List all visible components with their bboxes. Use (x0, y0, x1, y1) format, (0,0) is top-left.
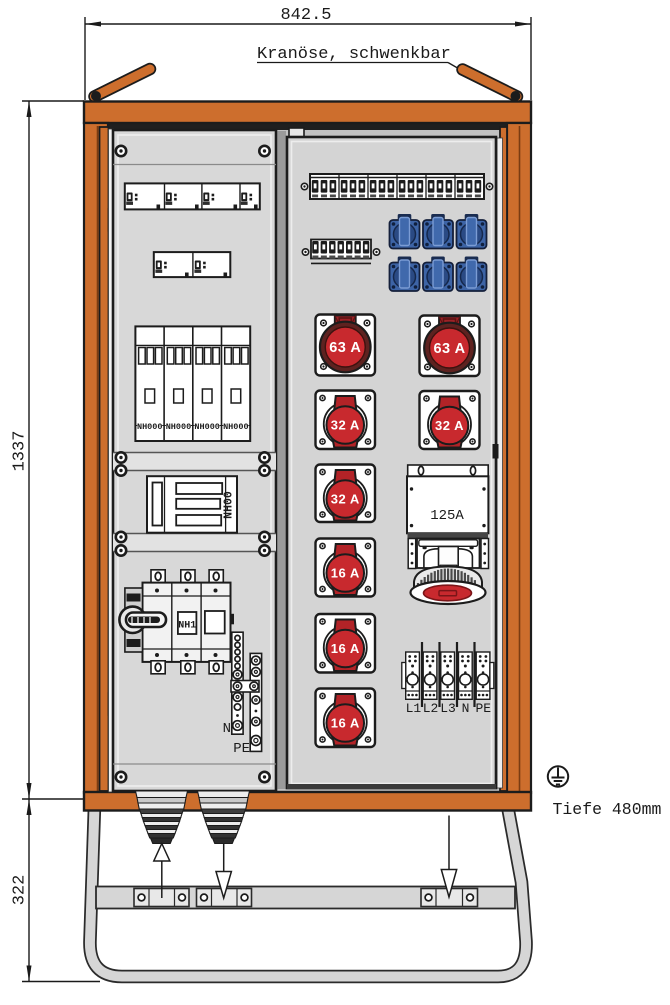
svg-text:NH00: NH00 (223, 491, 236, 519)
svg-text:842.5: 842.5 (280, 6, 331, 25)
svg-text:32 A: 32 A (331, 418, 360, 433)
svg-text:NH000: NH000 (194, 422, 220, 432)
svg-text:1337: 1337 (11, 431, 30, 472)
svg-text:125A: 125A (430, 508, 464, 524)
svg-text:Tiefe 480mm: Tiefe 480mm (553, 800, 662, 819)
svg-text:16 A: 16 A (331, 716, 360, 731)
svg-text:NH000: NH000 (166, 422, 192, 432)
svg-text:Kranöse, schwenkbar: Kranöse, schwenkbar (257, 45, 451, 64)
svg-text:L1: L1 (406, 701, 422, 716)
svg-text:322: 322 (11, 875, 30, 906)
svg-text:NH1: NH1 (178, 621, 196, 632)
svg-text:16 A: 16 A (331, 641, 360, 656)
svg-text:63 A: 63 A (329, 340, 361, 356)
svg-text:NH000: NH000 (137, 422, 163, 432)
svg-text:L2: L2 (423, 701, 439, 716)
svg-text:PE: PE (233, 741, 250, 757)
svg-text:PE: PE (475, 701, 491, 716)
svg-text:16 A: 16 A (331, 566, 360, 581)
svg-text:L3: L3 (440, 701, 456, 716)
svg-text:N: N (223, 721, 231, 737)
svg-text:32 A: 32 A (331, 492, 360, 507)
svg-text:NH000: NH000 (223, 422, 249, 432)
svg-text:N: N (462, 701, 470, 716)
svg-text:32 A: 32 A (435, 418, 464, 433)
svg-text:63 A: 63 A (433, 341, 465, 357)
